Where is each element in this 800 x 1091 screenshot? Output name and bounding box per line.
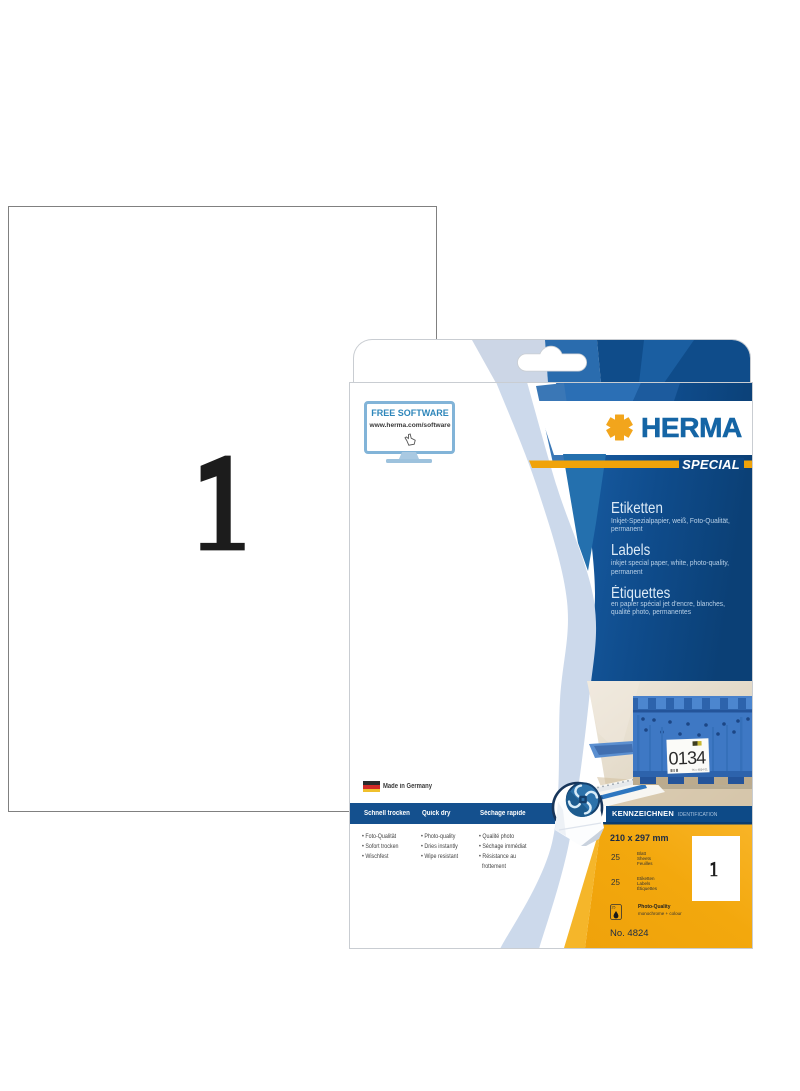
svg-text:75 x 4824 01: 75 x 4824 01 [691,767,708,772]
svg-text:0134: 0134 [668,747,706,768]
svg-text:25: 25 [612,906,616,910]
